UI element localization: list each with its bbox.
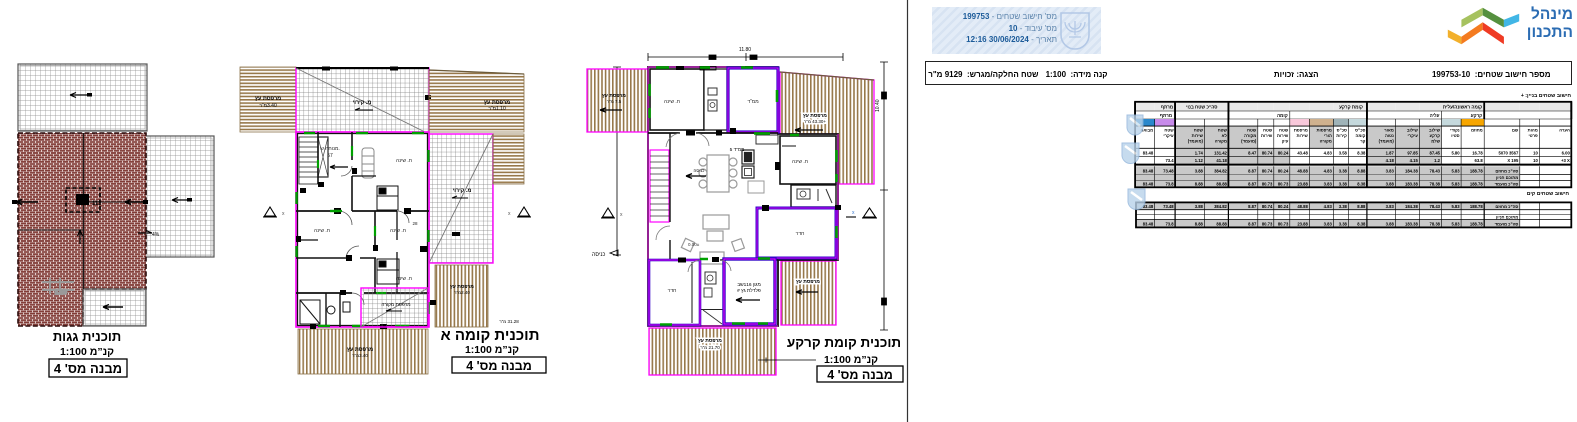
svg-text:5.83: 5.83 [1451,222,1460,227]
svg-text:שילוב: שילוב [1429,128,1441,133]
svg-text:שטח: שטח [1279,128,1289,133]
svg-text:1.80: 1.80 [55,290,67,296]
svg-text:83.48: 83.48 [1143,222,1154,227]
svg-text:ח. שינה: ח. שינה [390,228,406,234]
svg-text:קרקע: קרקע [1430,133,1441,138]
svg-text:חדר: חדר [796,231,805,237]
svg-text:נטוה: נטוה [1385,133,1394,138]
svg-text:סטיו: סטיו [1451,133,1459,138]
svg-text:4.15: 4.15 [1410,158,1419,163]
svg-text:עליה: עליה [1430,113,1440,118]
svg-text:78.43: 78.43 [1430,204,1441,209]
svg-text:מקורה: מקורה [1215,139,1227,144]
svg-text:סה”כ מחוזם: סה”כ מחוזם [1495,204,1518,209]
svg-text:ח. שינה: ח. שינה [664,99,680,105]
svg-text:8.87: 8.87 [1248,204,1257,209]
svg-text:(מועמד): (מועמד) [1379,139,1395,144]
svg-text:מנוחה ש.: מנוחה ש. [320,146,340,152]
svg-text:הערה: הערה [1559,128,1570,133]
svg-text:80.73: 80.73 [1278,181,1289,186]
svg-text:0.00±: 0.00± [688,242,700,247]
svg-text:קומה: קומה [1277,113,1288,118]
svg-text:97.85: 97.85 [1407,150,1418,155]
svg-text:נקודי: נקודי [1450,128,1460,133]
svg-text:10: 10 [1533,150,1538,155]
svg-text:מאור: מאור [1384,128,1394,133]
svg-text:x: x [620,212,623,218]
svg-text:78.38: 78.38 [1430,181,1441,186]
svg-text:3.38: 3.38 [1339,204,1348,209]
svg-text:כניסה: כניסה [592,252,605,258]
svg-text:83.48: 83.48 [1143,169,1154,174]
svg-text:80.74: 80.74 [1262,169,1273,174]
svg-text:5.83: 5.83 [1451,181,1460,186]
svg-text:10.40: 10.40 [875,99,881,112]
svg-text:סכ”ס: סכ”ס [1355,128,1365,133]
svg-text:3.83: 3.83 [1386,204,1395,209]
svg-text:קרקע: קרקע [1471,113,1483,118]
svg-text:80.74: 80.74 [1262,204,1273,209]
svg-text:קנ”מ 1:100: קנ”מ 1:100 [60,346,114,358]
svg-text:מרפסת מקורה: מרפסת מקורה [381,303,410,308]
svg-text:3.38: 3.38 [1339,181,1348,186]
svg-text:מקורה: מקורה [1320,139,1332,144]
svg-text:183.38: 183.38 [1405,181,1418,186]
svg-text:78.38: 78.38 [1430,222,1441,227]
svg-text:מ. קירוי: מ. קירוי [453,188,472,194]
svg-text:41.18: 41.18 [1216,158,1227,163]
svg-text:88.88: 88.88 [1216,181,1227,186]
svg-text:80.74: 80.74 [1262,150,1273,155]
svg-text:80.24: 80.24 [1278,150,1289,155]
svg-text:3.83: 3.83 [1324,181,1333,186]
svg-text:188.78: 188.78 [1470,169,1483,174]
svg-text:שם: שם [1512,128,1519,133]
svg-text:8.87: 8.87 [1248,181,1257,186]
svg-text:3.83: 3.83 [1324,222,1333,227]
svg-text:עיקרי: עיקרי [1163,133,1174,138]
svg-text:73.48: 73.48 [1163,169,1174,174]
svg-text:184.38: 184.38 [1405,169,1418,174]
svg-text:8.38: 8.38 [1357,222,1366,227]
svg-text:16.78: 16.78 [1472,150,1483,155]
svg-text:שלמ: שלמ [1431,139,1440,144]
svg-text:5070 3567: 5070 3567 [1499,150,1519,155]
svg-text:5.83: 5.83 [1451,204,1460,209]
svg-text:88.88: 88.88 [1216,222,1227,227]
svg-text:23.88: 23.88 [1297,222,1308,227]
svg-text:מרפסת: מרפסת [1294,128,1308,133]
svg-text:ח. שינה: ח. שינה [792,159,808,165]
svg-text:83.48: 83.48 [1143,150,1154,155]
svg-text:x: x [508,211,511,217]
svg-text:מרפסת עץ: מרפסת עץ [255,96,281,102]
svg-text:3.88: 3.88 [1386,181,1395,186]
svg-text:131.42: 131.42 [1214,150,1227,155]
svg-text:X 195: X 195 [1507,158,1519,163]
svg-text:תוכנית קומת קרקע: תוכנית קומת קרקע [787,335,901,350]
svg-text:3.40מ”ר: 3.40מ”ר [259,103,277,109]
svg-text:4.83: 4.83 [1324,204,1333,209]
svg-text:4.83: 4.83 [1324,169,1333,174]
svg-text:1.87: 1.87 [1386,150,1395,155]
svg-text:שטח: שטח [1263,128,1273,133]
svg-text:מרתף: מרתף [1161,105,1173,110]
svg-text:שירות: שירות [1192,133,1204,138]
svg-text:מרפסות: מרפסות [1317,128,1332,133]
svg-text:עיקרי: עיקרי [1408,133,1419,138]
svg-text:1.2: 1.2 [1434,158,1440,163]
svg-text:קומה ראשונה/עלית: קומה ראשונה/עלית [1443,105,1482,110]
svg-text:8.88: 8.88 [1195,181,1204,186]
svg-text:מרפסת עץ: מרפסת עץ [698,338,722,344]
svg-text:פרטי: פרטי [1529,133,1539,138]
svg-text:3.88: 3.88 [1386,222,1395,227]
svg-text:(מועמד): (מועמד) [1241,139,1257,144]
svg-text:ח. שינה: ח. שינה [396,276,412,282]
svg-text:כניסה: כניסה [694,168,706,173]
svg-text:מרפסת עץ: מרפסת עץ [796,279,820,285]
svg-text:קר: קר [1360,139,1365,144]
svg-text:קנ”מ 1:100: קנ”מ 1:100 [465,344,519,356]
svg-text:x: x [282,211,285,217]
svg-text:28: 28 [412,221,418,226]
svg-text:מתוכם חניון: מתוכם חניון [1496,214,1518,219]
svg-text:21.70 מ”ר: 21.70 מ”ר [700,345,720,350]
svg-text:48.88: 48.88 [1297,204,1308,209]
svg-text:קנ”מ 1:100: קנ”מ 1:100 [824,354,878,366]
svg-text:3.40מ”ר: 3.40מ”ר [352,353,368,358]
svg-text:384.82: 384.82 [1214,169,1227,174]
svg-text:ח. שינה: ח. שינה [396,158,412,164]
svg-text:8.87: 8.87 [1248,169,1257,174]
svg-text:ח. שינה: ח. שינה [314,228,330,234]
svg-text:מבנה מס' 4: מבנה מס' 4 [54,361,122,376]
svg-text:11.80: 11.80 [739,47,751,53]
svg-text:(מועמד): (מועמד) [1188,139,1204,144]
svg-text:73.48: 73.48 [1163,204,1174,209]
svg-text:188.78: 188.78 [1470,222,1483,227]
svg-text:מתוכם חניון: מתוכם חניון [1496,175,1518,180]
svg-text:הורי: הורי [1324,133,1332,138]
svg-text:188.78: 188.78 [1470,181,1483,186]
svg-text:סה”כ מחוזם: סה”כ מחוזם [1495,169,1518,174]
svg-text:3.83: 3.83 [1386,169,1395,174]
svg-text:סה”כ מועמד: סה”כ מועמד [1495,222,1519,227]
svg-text:x: x [852,210,855,216]
svg-text:מקורה: מקורה [1244,133,1256,138]
svg-text:80.73: 80.73 [1262,222,1273,227]
svg-text:# פלדלת גץ: # פלדלת גץ [737,287,761,294]
svg-text:80.24: 80.24 [1278,204,1289,209]
svg-text:3.38: 3.38 [1339,222,1348,227]
svg-text:78.43: 78.43 [1430,169,1441,174]
svg-text:8.38: 8.38 [1357,181,1366,186]
svg-text:ממ”ד 5: ממ”ד 5 [730,147,745,153]
svg-text:83.48: 83.48 [1143,181,1154,186]
svg-text:+3 X: +3 X [1561,158,1570,163]
svg-text:4%: 4% [152,232,160,238]
svg-text:1.12: 1.12 [1195,158,1204,163]
svg-text:שטח: שטח [1247,128,1257,133]
svg-text:43.48: 43.48 [1297,150,1308,155]
svg-text:3.38: 3.38 [1339,169,1348,174]
svg-text:סה”כ מועמד: סה”כ מועמד [1495,181,1519,186]
svg-text:1.10מ”ר: 1.10מ”ר [488,106,506,112]
svg-text:סכ”ס: סכ”ס [1337,128,1347,133]
svg-text:8.88: 8.88 [1195,222,1204,227]
svg-text:7.5 מ”ר: 7.5 מ”ר [607,99,622,104]
svg-text:4.18: 4.18 [1386,158,1395,163]
svg-text:8.38: 8.38 [1357,150,1366,155]
svg-text:80.73: 80.73 [1262,181,1273,186]
svg-text:מבנה מס' 4: מבנה מס' 4 [827,368,893,382]
svg-text:מהות: מהות [1528,128,1538,133]
svg-text:מגון 116שב: מגון 116שב [737,282,761,288]
svg-text:קומה: קומה [1356,133,1366,138]
svg-text:ממ”ד: ממ”ד [747,99,759,105]
svg-text:73.8: 73.8 [1165,181,1174,186]
svg-text:183.38: 183.38 [1405,222,1418,227]
svg-text:מ. קירוי: מ. קירוי [353,100,372,106]
svg-text:חדר: חדר [668,288,677,294]
svg-text:73.8: 73.8 [1165,222,1174,227]
svg-text:שירות: שירות [1277,133,1289,138]
svg-text:לא: לא [1222,133,1228,138]
svg-text:שטח: שטח [1218,128,1228,133]
svg-text:80.73: 80.73 [1278,222,1289,227]
svg-text:קירות: קירות [1336,133,1347,138]
svg-text:שילוב: שילוב [1407,128,1419,133]
svg-text:שירות: שירות [1296,133,1308,138]
svg-text:63.8: 63.8 [1475,158,1484,163]
svg-text:4.83: 4.83 [1324,150,1333,155]
svg-text:8.88: 8.88 [1357,169,1366,174]
svg-text:188.78: 188.78 [1470,204,1483,209]
svg-text:2.40מ”ר: 2.40מ”ר [454,290,470,295]
svg-text:סה”כ שטח בנוי: סה”כ שטח בנוי [1186,105,1217,110]
svg-text:184.38: 184.38 [1405,204,1418,209]
svg-text:57: 57 [327,153,333,159]
svg-text:מרתף: מרתף [1160,113,1172,118]
svg-text:שטח: שטח [1194,128,1204,133]
svg-text:8.47: 8.47 [1248,150,1257,155]
svg-text:31.28 מ”ר: 31.28 מ”ר [499,319,519,324]
svg-text:23.88: 23.88 [1297,181,1308,186]
svg-text:10: 10 [1533,158,1538,163]
svg-text:6.00: 6.00 [1562,150,1571,155]
svg-text:87.45: 87.45 [1430,150,1441,155]
svg-text:8.87: 8.87 [1248,222,1257,227]
svg-text:מבנה מס' 4: מבנה מס' 4 [466,359,532,373]
svg-text:5.80: 5.80 [1451,150,1460,155]
svg-text:שטח: שטח [1164,128,1174,133]
svg-text:5.83: 5.83 [1451,169,1460,174]
svg-text:3.88: 3.88 [1195,204,1204,209]
svg-text:3.88: 3.88 [1195,169,1204,174]
svg-text:+43.30 מ”ר: +43.30 מ”ר [804,119,827,124]
svg-text:8.88: 8.88 [1357,204,1366,209]
svg-text:קומת קרקע: קומת קרקע [1339,105,1363,110]
svg-text:1.74: 1.74 [1195,150,1204,155]
svg-text:עיק: עיק [1282,139,1289,144]
svg-text:תוכנית גגות: תוכנית גגות [53,329,121,344]
svg-text:3.58: 3.58 [1339,150,1348,155]
svg-text:48.88: 48.88 [1297,169,1308,174]
svg-text:73.4: 73.4 [1165,158,1174,163]
svg-text:384.82: 384.82 [1214,204,1227,209]
svg-text:מחוזמ: מחוזמ [1471,128,1483,133]
svg-text:שירות: שירות [1261,133,1273,138]
svg-text:111: 111 [92,201,102,207]
svg-text:80.24: 80.24 [1278,169,1289,174]
svg-text:תוכנית קומה א: תוכנית קומה א [441,327,540,344]
